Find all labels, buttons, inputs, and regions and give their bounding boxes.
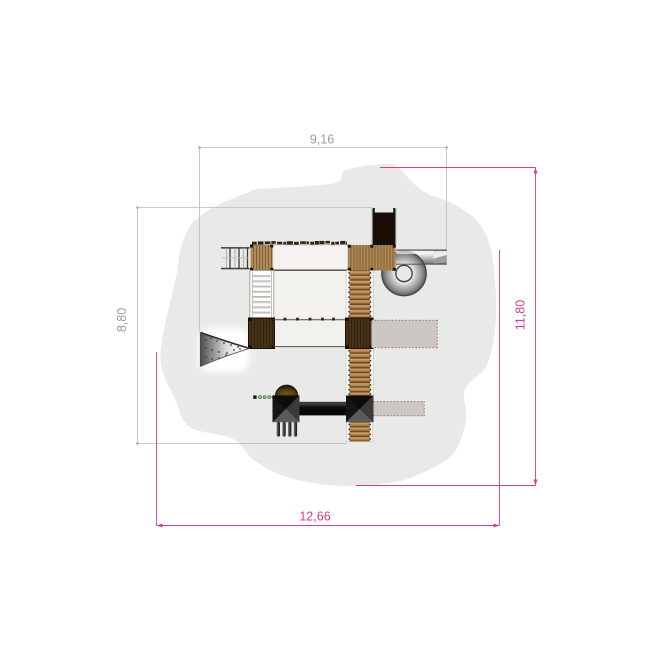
svg-text:9,16: 9,16 xyxy=(310,133,334,147)
svg-text:8,80: 8,80 xyxy=(115,308,129,332)
svg-text:12,66: 12,66 xyxy=(299,510,330,524)
svg-text:11,80: 11,80 xyxy=(514,300,528,330)
